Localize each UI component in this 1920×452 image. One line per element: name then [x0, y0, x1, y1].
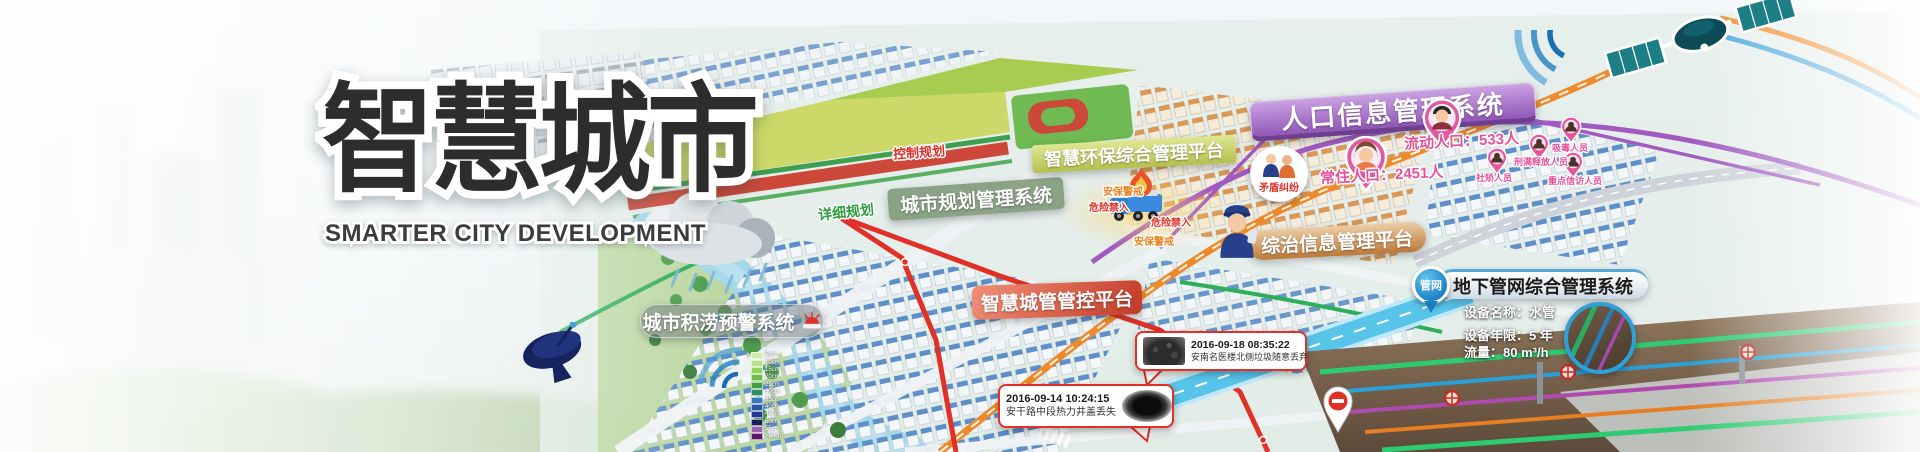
legend-label: 45cm — [765, 411, 780, 418]
legend-swatch — [751, 352, 763, 359]
legend-swatch — [751, 426, 763, 433]
system-label-pipe-network: 地下管网综合管理系统 — [1438, 269, 1648, 299]
category-label-drug-user: 吸毒人员 — [1552, 141, 1588, 154]
police-officer-icon — [1214, 202, 1262, 260]
legend-label: 10cm — [765, 360, 780, 367]
legend-swatch — [751, 360, 763, 367]
smart-city-banner: 智慧城市 智慧城市 SMARTER CITY DEVELOPMENT SMART… — [0, 0, 1920, 452]
event-callout-2: 2016-09-14 10:24:15 安干路中段热力井盖丢失 — [998, 384, 1174, 428]
legend-row: 50cm — [751, 419, 783, 426]
category-label-community-correction: 社矫人员 — [1476, 171, 1512, 184]
pipe-network-pin: 管网 — [1412, 266, 1450, 304]
dispute-bubble: 矛盾纠纷 — [1250, 146, 1308, 202]
event-description: 安南名医楼北侧垃圾随意丢弃 — [1191, 352, 1308, 363]
security-tag-cordon-bottom: 安保警戒 — [1134, 233, 1174, 248]
legend-swatch — [751, 389, 763, 396]
legend-swatch — [751, 367, 763, 374]
satellite-signal-icon — [1488, 30, 1580, 104]
siren-icon — [802, 312, 822, 330]
event-photo-manhole — [1122, 390, 1172, 422]
category-label-released-prisoner: 刑满释放人员 — [1514, 155, 1568, 168]
legend-label: 25cm — [765, 382, 780, 389]
dispute-label: 矛盾纠纷 — [1259, 179, 1299, 194]
legend-swatch — [751, 374, 763, 381]
dispute-people-icon — [1261, 153, 1297, 179]
pipe-pin-label: 管网 — [1420, 277, 1442, 293]
legend-row: 25cm — [751, 382, 783, 389]
event-photo-trash — [1143, 337, 1185, 365]
legend-label: 30cm — [765, 389, 780, 396]
legend-row: 20cm — [751, 374, 783, 381]
banner-title-text: 智慧城市 — [322, 82, 755, 200]
security-tag-danger-left: 危险禁入 — [1089, 199, 1129, 214]
legend-row: 10cm — [751, 359, 783, 366]
legend-label: 35cm — [765, 397, 780, 404]
banner-title: 智慧城市 智慧城市 — [322, 82, 802, 212]
legend-row: 30cm — [751, 389, 783, 396]
legend-label: 40cm — [765, 404, 780, 411]
pipe-flow-rate: 流量：80 m³/h — [1464, 342, 1549, 361]
security-tag-danger-right: 危险禁入 — [1151, 214, 1191, 229]
satellite-icon — [1596, 0, 1806, 78]
event-callout-1: 2016-09-18 08:35:22 安南名医楼北侧垃圾随意丢弃 — [1135, 331, 1307, 371]
event-time: 2016-09-14 10:24:15 — [1006, 393, 1116, 407]
legend-swatch — [751, 404, 763, 411]
legend-label: >60cm — [765, 433, 783, 440]
radar-signal-icon — [680, 342, 742, 390]
legend-swatch — [751, 411, 763, 418]
legend-row: 45cm — [751, 411, 783, 418]
event-time: 2016-09-18 08:35:22 — [1191, 339, 1308, 352]
event-description: 安干路中段热力井盖丢失 — [1006, 407, 1116, 420]
security-tag-cordon-top: 安保警戒 — [1103, 183, 1143, 198]
legend-row: 35cm — [751, 396, 783, 403]
system-label-flood-warning: 城市积涝预警系统 — [640, 304, 824, 338]
satellite-dish-icon — [520, 322, 600, 388]
pipe-device-name: 设备名称：水管 — [1464, 302, 1555, 321]
legend-label: 50cm — [765, 419, 780, 426]
legend-row: 5cm — [751, 352, 783, 359]
legend-label: 20cm — [765, 374, 780, 381]
flood-warning-text: 城市积涝预警系统 — [642, 308, 794, 335]
banner-subtitle-text: SMARTER CITY DEVELOPMENT — [325, 221, 706, 247]
category-label-key-petitioner: 重点信访人员 — [1548, 174, 1602, 187]
legend-swatch — [751, 382, 763, 389]
category-pin-icon — [1560, 117, 1582, 144]
planning-tag-control: 控制规划 — [892, 140, 945, 163]
legend-swatch — [751, 397, 763, 404]
legend-row: >60cm — [751, 433, 783, 440]
legend-label: 5cm — [765, 352, 776, 359]
system-label-city-management: 智慧城管管控平台 — [971, 280, 1142, 320]
flood-depth-legend: 5cm 10cm 15cm 20cm 25cm 30cm 35cm 40cm 4… — [751, 352, 783, 441]
legend-swatch — [751, 433, 763, 440]
pipe-photo-inset — [1564, 302, 1636, 374]
legend-swatch — [751, 419, 763, 426]
banner-subtitle: SMARTER CITY DEVELOPMENT SMARTER CITY DE… — [325, 221, 745, 253]
legend-label: 15cm — [765, 367, 780, 374]
